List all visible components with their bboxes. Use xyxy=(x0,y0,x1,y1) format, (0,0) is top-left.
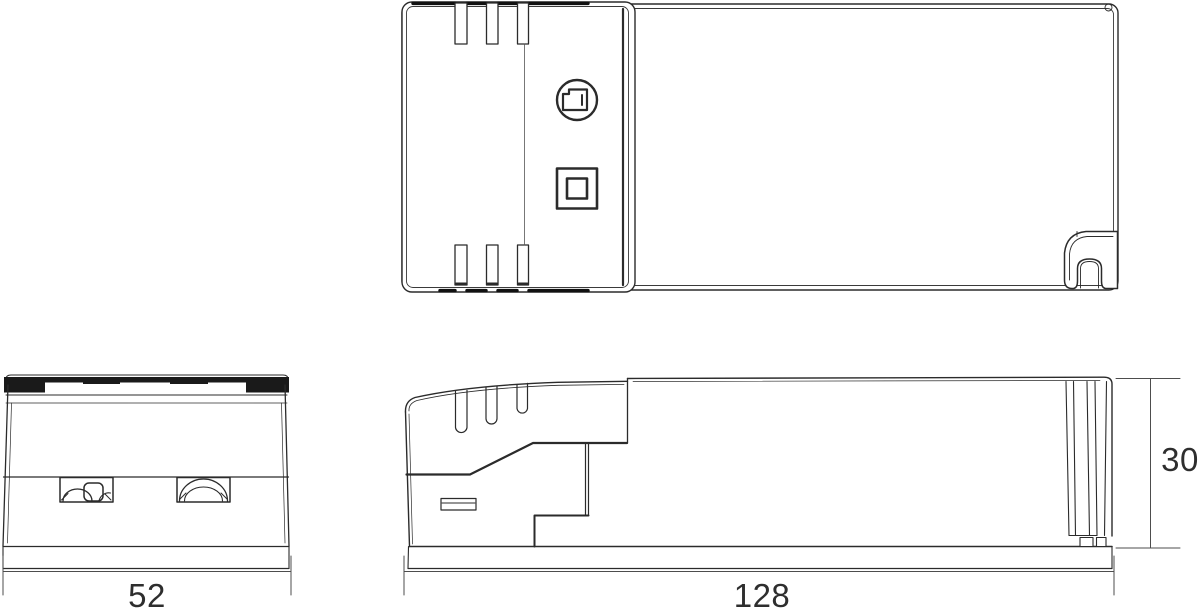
cable-opening-right xyxy=(177,478,230,503)
end-view xyxy=(3,375,289,569)
wiring-slots-bottom xyxy=(455,245,529,285)
technical-dimension-drawing: 52 128 30 xyxy=(0,0,1200,611)
drawing-svg: 52 128 30 xyxy=(0,0,1200,611)
housing-split-line xyxy=(407,443,628,547)
wiring-slots-top xyxy=(455,3,529,44)
dimension-length-label: 128 xyxy=(734,577,791,611)
dimension-height-label: 30 xyxy=(1161,441,1199,478)
side-view xyxy=(405,377,1112,568)
dimension-width-label: 52 xyxy=(128,577,166,611)
top-view xyxy=(402,2,1118,292)
end-view-top-seal xyxy=(4,377,289,393)
cable-opening-left xyxy=(60,478,113,503)
strain-relief-side xyxy=(1066,382,1107,547)
terminal-cover xyxy=(402,2,635,292)
side-slots xyxy=(456,383,528,432)
side-vent-slot xyxy=(441,499,476,511)
